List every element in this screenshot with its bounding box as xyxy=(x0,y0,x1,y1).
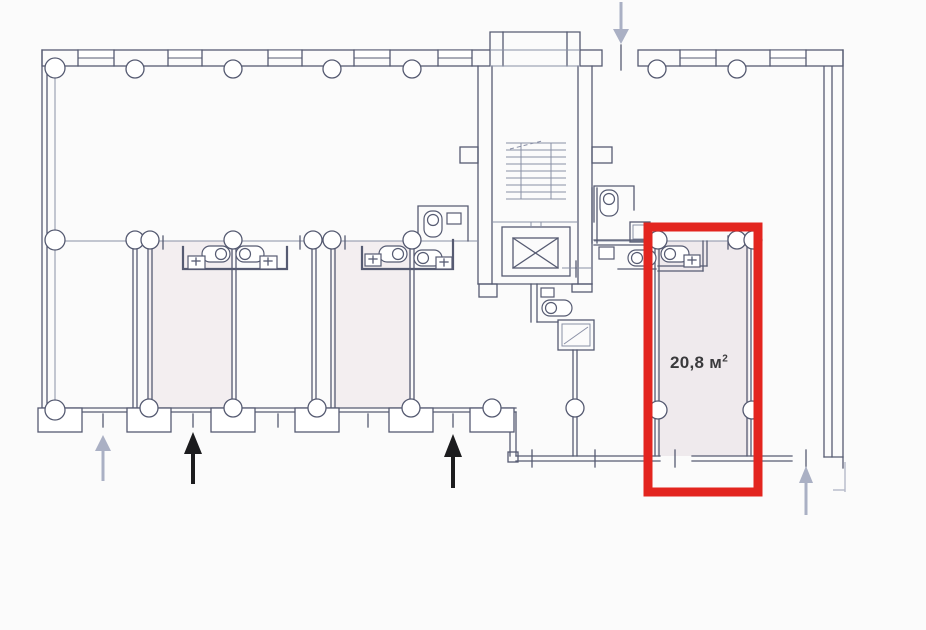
column xyxy=(141,231,159,249)
staircase xyxy=(506,141,566,199)
column xyxy=(323,231,341,249)
window xyxy=(680,50,716,58)
wall-stub xyxy=(460,147,478,163)
entrance-arrow-black-center xyxy=(444,434,462,488)
window xyxy=(78,50,114,58)
column xyxy=(308,399,326,417)
column xyxy=(403,231,421,249)
wall-stub xyxy=(592,147,612,163)
window xyxy=(354,50,390,58)
sink-icon xyxy=(447,213,461,224)
column xyxy=(402,399,420,417)
column xyxy=(483,399,501,417)
bathroom-fixtures xyxy=(183,186,707,350)
window xyxy=(770,50,806,58)
area-label: 20,8 м2 xyxy=(670,353,728,373)
column xyxy=(45,230,65,250)
sink-icon xyxy=(599,247,614,259)
column xyxy=(648,60,666,78)
column xyxy=(304,231,322,249)
column xyxy=(323,60,341,78)
column xyxy=(224,399,242,417)
column xyxy=(566,399,584,417)
area-superscript: 2 xyxy=(722,353,728,364)
column xyxy=(224,60,242,78)
window xyxy=(268,50,302,58)
entrance-arrow-gray-right xyxy=(799,466,813,515)
column xyxy=(126,60,144,78)
area-value: 20,8 м xyxy=(670,353,722,372)
window xyxy=(438,50,472,58)
top-wall-right xyxy=(580,45,843,70)
top-wall-left xyxy=(42,50,490,66)
column xyxy=(140,399,158,417)
stair-direction-line xyxy=(510,141,542,149)
column xyxy=(45,400,65,420)
floor-plan-stage: 20,8 м2 xyxy=(0,0,926,630)
right-wall xyxy=(824,50,845,492)
window xyxy=(168,50,202,58)
highlighted-unit-floor[interactable] xyxy=(657,241,749,456)
floor-plan-svg xyxy=(0,0,926,630)
elevator-shaft xyxy=(502,222,570,276)
sink-icon xyxy=(541,288,554,297)
column xyxy=(45,58,65,78)
entrance-arrow-gray-left xyxy=(95,435,111,481)
column xyxy=(728,231,746,249)
column xyxy=(728,60,746,78)
entrance-arrow-black-left xyxy=(184,432,202,484)
column xyxy=(403,60,421,78)
entrance-arrow-gray-top xyxy=(613,2,629,44)
column xyxy=(224,231,242,249)
